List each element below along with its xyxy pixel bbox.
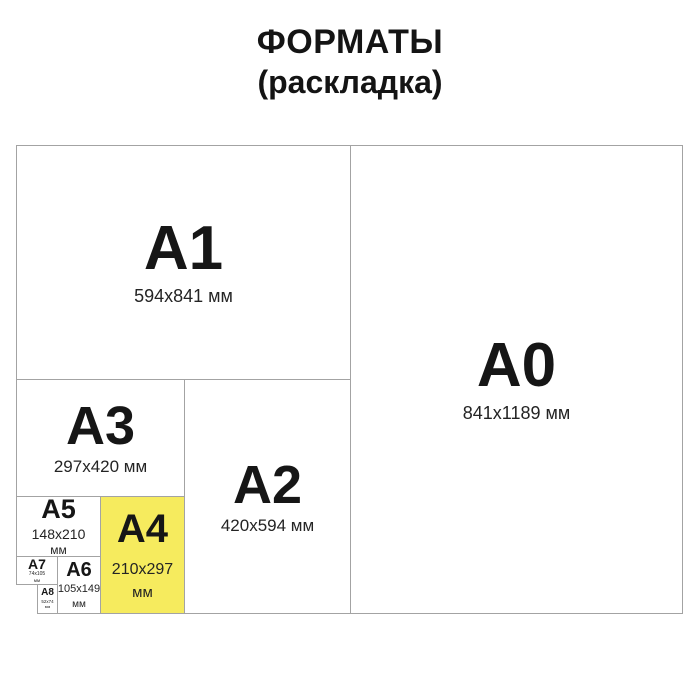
format-box-content: A8 52x74 мм [41,588,54,610]
format-size: 210x297 [112,561,173,579]
format-box-content: A7 74x105 мм [28,557,46,584]
format-size: 420x594 мм [221,516,314,536]
format-box-a6: A6 105x149 мм [57,556,101,614]
format-size: 841x1189 мм [463,403,571,424]
format-size: 148x210 [32,526,86,542]
format-label: A8 [41,588,54,598]
format-box-content: A2 420x594 мм [221,458,314,536]
format-label: A1 [134,218,233,280]
format-box-a7: A7 74x105 мм [16,556,58,585]
format-box-a1: A1 594x841 мм [16,145,351,380]
paper-formats-diagram: ФОРМАТЫ (раскладка) A0 841x1189 мм A1 59… [0,0,700,700]
format-size: 105x149 [58,583,100,596]
format-box-content: A5 148x210 мм [32,496,86,557]
page-title: ФОРМАТЫ (раскладка) [0,22,700,101]
format-box-a3: A3 297x420 мм [16,379,185,497]
format-label: A0 [463,335,571,397]
format-unit: мм [41,605,54,609]
format-box-content: A3 297x420 мм [54,399,147,477]
format-size: 297x420 мм [54,457,147,477]
format-label: A7 [28,557,46,571]
format-label: A6 [58,560,100,580]
format-unit: мм [58,599,100,610]
format-label: A2 [221,458,314,512]
format-box-content: A6 105x149 мм [58,560,100,610]
format-box-content: A0 841x1189 мм [463,335,571,424]
format-size: 594x841 мм [134,286,233,307]
format-box-content: A4 210x297 мм [112,509,173,602]
title-line-2: (раскладка) [0,63,700,101]
format-box-a2: A2 420x594 мм [184,379,351,614]
format-label: A5 [32,496,86,523]
format-box-a0: A0 841x1189 мм [350,145,683,614]
format-box-a5: A5 148x210 мм [16,496,101,557]
format-box-a4-highlighted: A4 210x297 мм [100,496,185,614]
format-box-content: A1 594x841 мм [134,218,233,307]
format-label: A3 [54,399,147,453]
format-box-a8: A8 52x74 мм [37,584,58,614]
format-label: A4 [112,509,173,549]
format-unit: мм [112,585,173,602]
title-line-1: ФОРМАТЫ [0,22,700,63]
